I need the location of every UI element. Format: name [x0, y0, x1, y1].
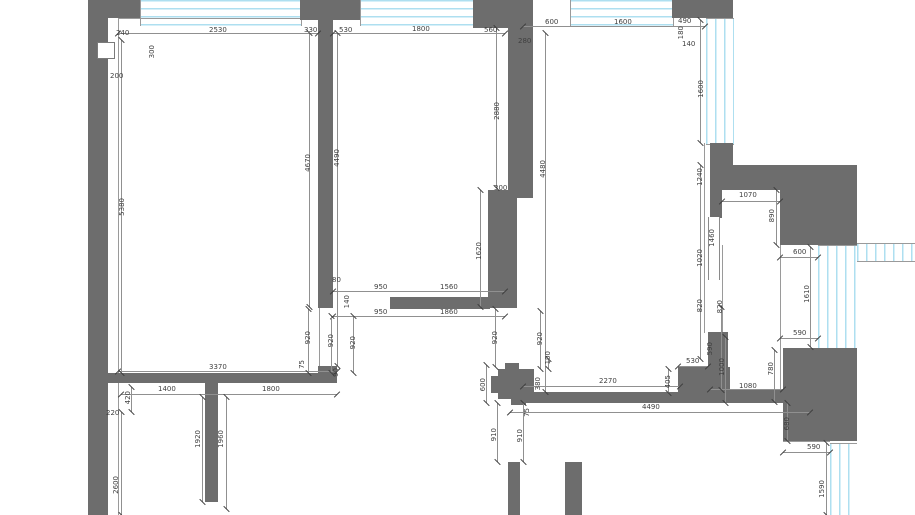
- dim-label: 1600: [614, 18, 632, 26]
- dim-label: 1020: [696, 249, 704, 267]
- dim-label: 330: [304, 26, 317, 34]
- dim-label: 530: [686, 357, 699, 365]
- wall-segment: [508, 462, 520, 515]
- dim-label: 920: [304, 331, 312, 344]
- room-outline: [118, 18, 320, 375]
- dim-label: 380: [534, 377, 542, 390]
- dim-label: 680: [783, 417, 791, 430]
- dim-label: 80: [332, 276, 341, 284]
- dim-label: 2880: [493, 102, 501, 120]
- dim-label: 780: [767, 362, 775, 375]
- dim-label: 4490: [333, 149, 341, 167]
- dim-label: 950: [374, 308, 387, 316]
- wall-segment: [491, 376, 498, 393]
- dimension-line: [826, 443, 827, 515]
- dimension-line: [780, 257, 818, 258]
- dimension-line: [783, 452, 830, 453]
- wall-face-line: [704, 143, 705, 333]
- dimension-line: [776, 190, 777, 245]
- dim-label: 220: [106, 409, 119, 417]
- wall-segment: [672, 0, 733, 18]
- dim-label: 820: [696, 299, 704, 312]
- dim-label: 140: [682, 40, 695, 48]
- dim-label: 1610: [803, 285, 811, 303]
- wall-segment: [710, 143, 733, 165]
- dim-label: 90: [332, 368, 340, 377]
- dim-label: 530: [339, 26, 352, 34]
- dim-label: 4490: [642, 403, 660, 411]
- dimension-line: [678, 366, 708, 367]
- dim-label: 910: [516, 429, 524, 442]
- dim-label: 920: [491, 331, 499, 344]
- dim-label: 4670: [304, 154, 312, 172]
- dim-label: 1070: [739, 191, 757, 199]
- dim-label: 590: [807, 443, 820, 451]
- dim-label: 1800: [262, 385, 280, 393]
- dim-label: 240: [116, 29, 129, 37]
- dimension-line: [780, 338, 818, 339]
- wall-segment: [565, 462, 582, 515]
- dim-label: 405: [664, 375, 672, 388]
- dim-label: 280: [518, 37, 531, 45]
- dim-label: 2600: [112, 476, 120, 494]
- wall-segment: [710, 165, 857, 190]
- dimension-line: [333, 316, 505, 317]
- dim-label: 1590: [818, 480, 826, 498]
- dim-label: 1920: [194, 430, 202, 448]
- dim-label: 910: [490, 428, 498, 441]
- dimension-line: [226, 397, 227, 509]
- dim-label: 2530: [209, 26, 227, 34]
- window: [830, 443, 857, 515]
- dim-label: 490: [678, 17, 691, 25]
- dim-label: 3370: [209, 363, 227, 371]
- dim-label: 140: [343, 295, 351, 308]
- dim-label: 560: [484, 26, 497, 34]
- wall-segment: [88, 0, 108, 515]
- wall-opening: [708, 217, 720, 280]
- dim-label: 1240: [696, 168, 704, 186]
- dimension-line: [121, 394, 337, 395]
- dimension-line: [337, 33, 338, 366]
- dim-label: 300: [148, 45, 156, 58]
- dim-label: 950: [374, 283, 387, 291]
- wall-segment: [88, 0, 140, 18]
- dim-label: 75: [523, 408, 531, 417]
- wall-segment: [508, 28, 533, 190]
- dim-label: 1800: [412, 25, 430, 33]
- dim-label: 1600: [697, 80, 705, 98]
- dimension-line: [202, 397, 203, 502]
- dim-label: 75: [298, 360, 306, 369]
- dim-label: 180: [677, 26, 685, 39]
- dim-label: 590: [706, 342, 714, 355]
- dimension-line: [121, 412, 122, 515]
- wall-face-line: [118, 383, 119, 515]
- dim-label: 1080: [739, 382, 757, 390]
- dim-label: 1620: [475, 242, 483, 260]
- dim-label: 1000: [718, 358, 726, 376]
- floor-plan: 2402530330530180056028060016004901801403…: [0, 0, 915, 515]
- dim-label: 2270: [599, 377, 617, 385]
- wall-segment: [780, 190, 857, 245]
- wall-segment: [100, 373, 337, 383]
- dim-label: 820: [716, 300, 724, 313]
- dim-label: 1460: [708, 229, 716, 247]
- window: [360, 0, 475, 26]
- window: [818, 245, 857, 350]
- dimension-line: [721, 307, 722, 390]
- wall-face-line: [780, 245, 781, 390]
- dim-label: 1400: [158, 385, 176, 393]
- wall-segment: [318, 18, 333, 308]
- dimension-line: [118, 371, 337, 372]
- window: [706, 18, 734, 145]
- dim-label: 600: [545, 18, 558, 26]
- dimension-line: [523, 386, 680, 387]
- dim-label: 890: [768, 209, 776, 222]
- dim-label: 420: [124, 391, 132, 404]
- dim-label: 920: [536, 332, 544, 345]
- dimension-line: [722, 201, 780, 202]
- dimension-line: [510, 412, 810, 413]
- dimension-line: [545, 33, 546, 392]
- dim-label: 920: [349, 336, 357, 349]
- dim-label: 200: [110, 72, 123, 80]
- detail-box: [97, 42, 115, 59]
- dim-label: 100: [544, 351, 552, 364]
- dim-label: 300: [494, 184, 507, 192]
- dim-label: 590: [793, 329, 806, 337]
- dimension-line: [333, 33, 505, 34]
- dim-label: 1560: [440, 283, 458, 291]
- dimension-line: [774, 350, 775, 402]
- dim-label: 5380: [118, 198, 126, 216]
- wall-segment: [783, 348, 857, 441]
- dim-label: 600: [793, 248, 806, 256]
- dim-label: 1960: [217, 430, 225, 448]
- wall-segment: [300, 0, 360, 20]
- dim-label: 600: [479, 378, 487, 391]
- wall-segment: [505, 363, 519, 370]
- window: [857, 243, 915, 262]
- dim-label: 4480: [539, 160, 547, 178]
- dim-label: 1860: [440, 308, 458, 316]
- dim-label: 920: [327, 334, 335, 347]
